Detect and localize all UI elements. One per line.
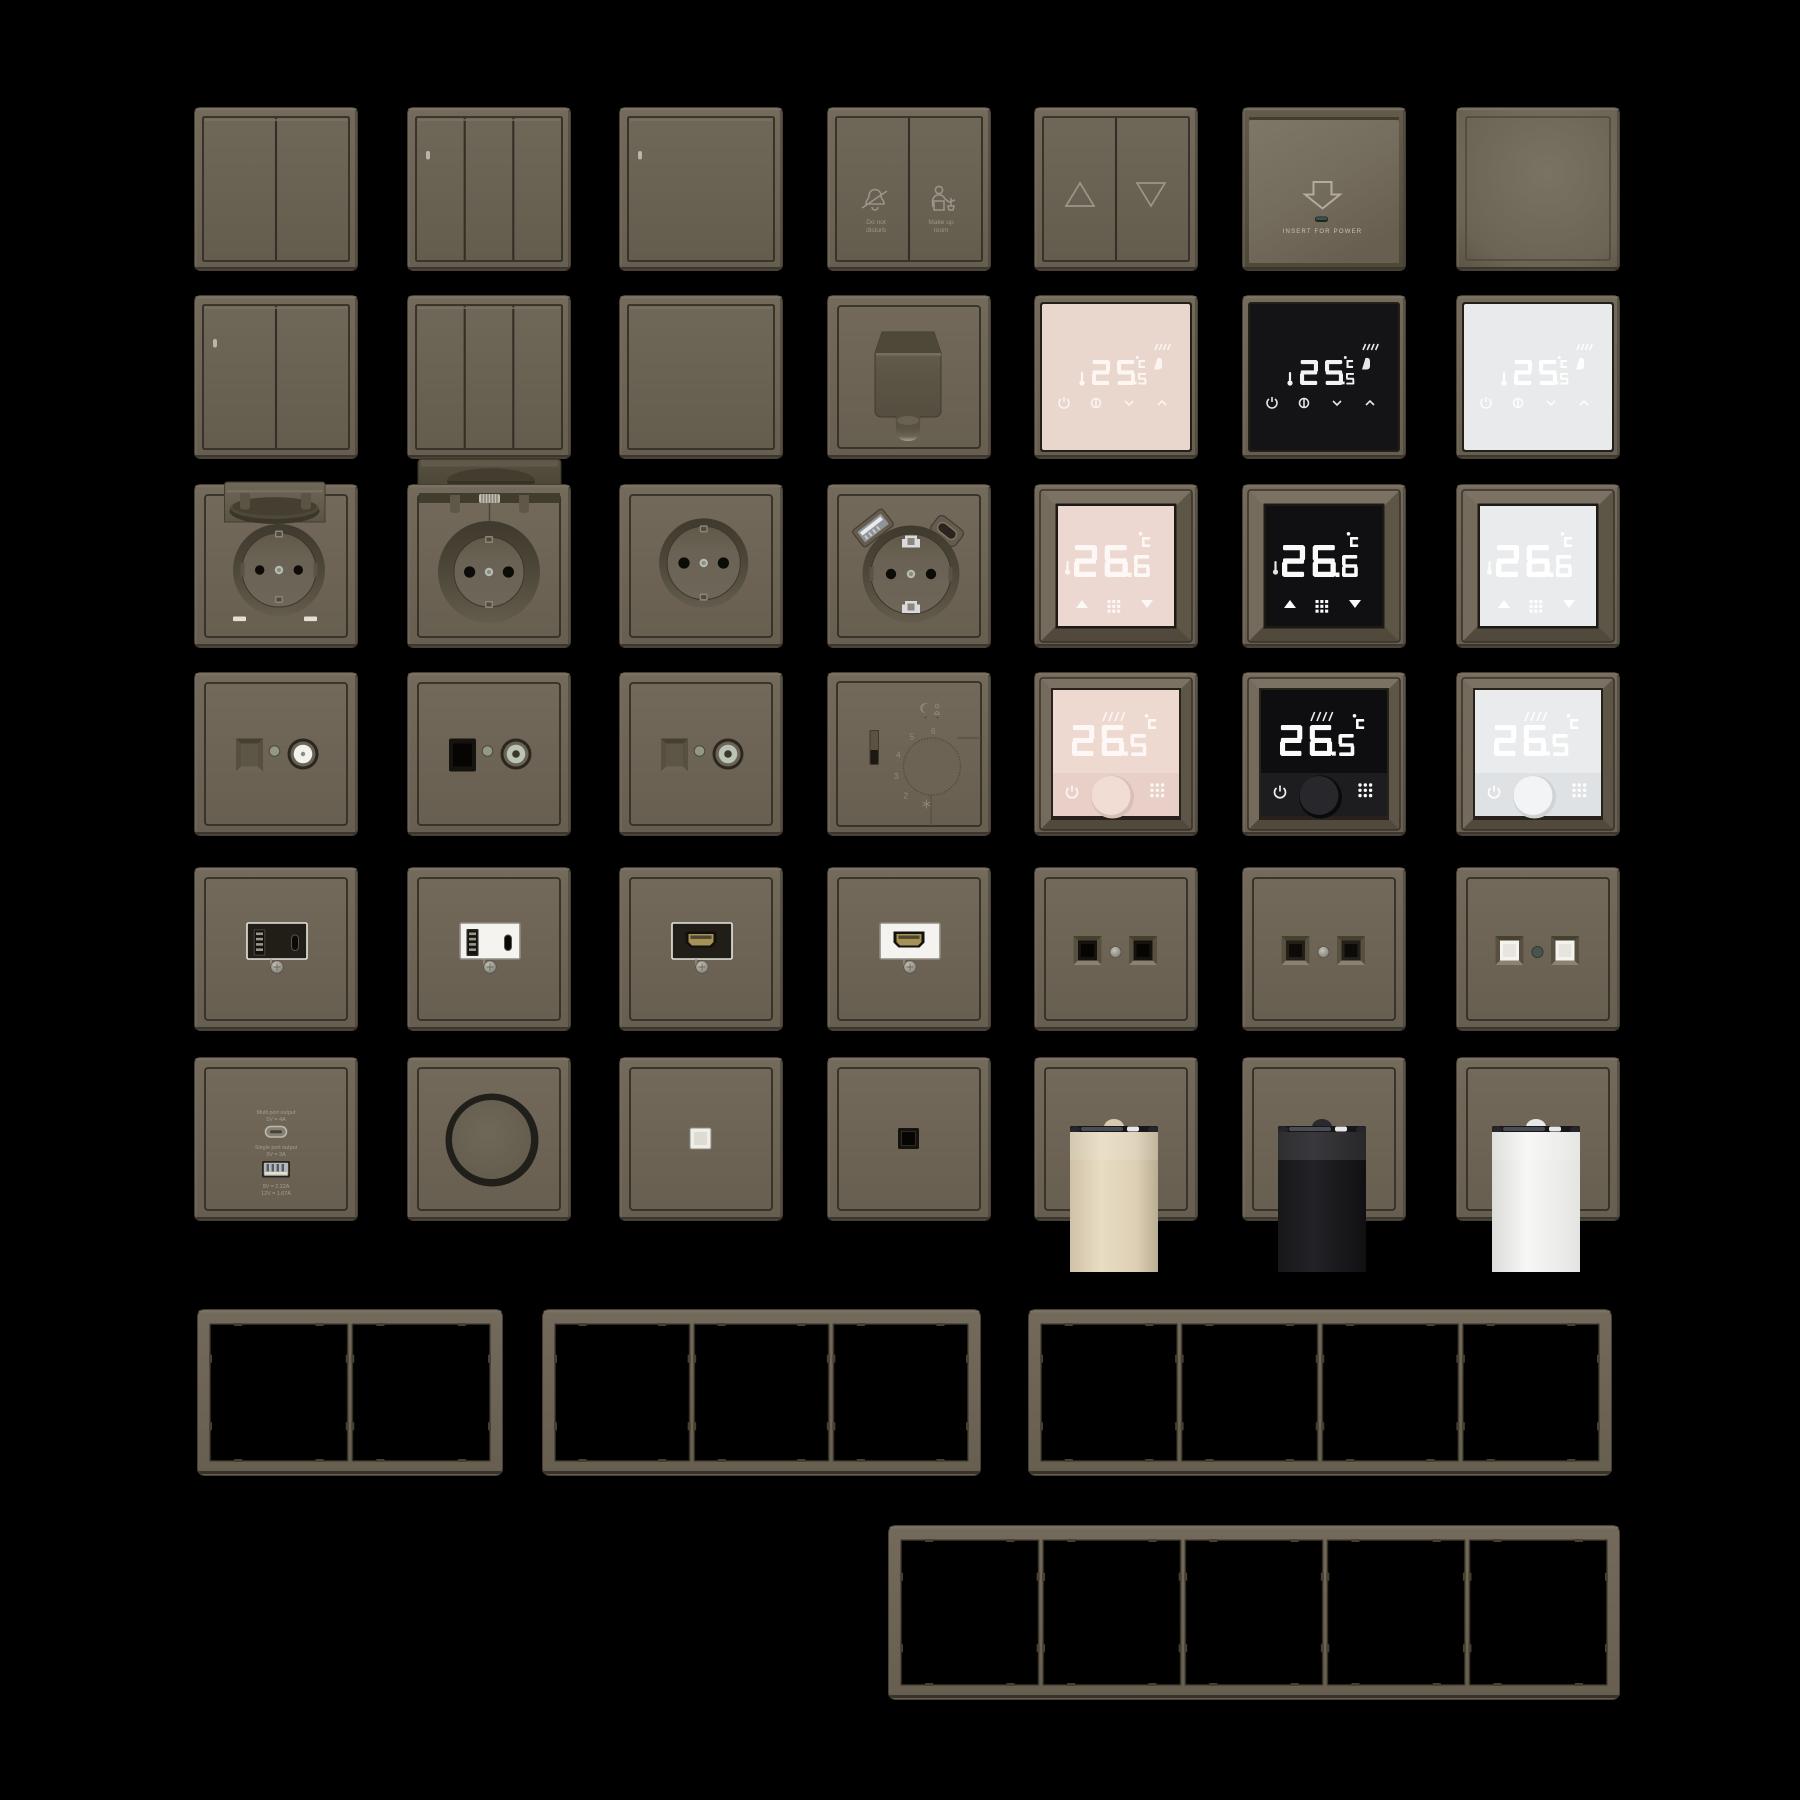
svg-text:Single port output: Single port output	[255, 1145, 298, 1151]
svg-text:Do not: Do not	[866, 219, 886, 226]
svg-text:Multi port output: Multi port output	[257, 1110, 296, 1116]
svg-text:5V = 3A: 5V = 3A	[266, 1152, 286, 1158]
svg-text:INSERT FOR POWER: INSERT FOR POWER	[1283, 229, 1363, 235]
svg-text:5V = 4A: 5V = 4A	[266, 1117, 286, 1123]
svg-text:Make up: Make up	[928, 219, 954, 226]
svg-text:12V = 1.67A: 12V = 1.67A	[261, 1191, 291, 1197]
svg-text:3: 3	[894, 771, 899, 781]
svg-text:disturb: disturb	[866, 227, 886, 234]
svg-text:5: 5	[910, 732, 915, 742]
svg-text:9V = 2.22A: 9V = 2.22A	[263, 1184, 290, 1190]
svg-text:6: 6	[931, 726, 936, 736]
svg-text:room: room	[933, 227, 949, 234]
svg-text:2: 2	[904, 791, 909, 801]
svg-text:4: 4	[896, 750, 901, 760]
